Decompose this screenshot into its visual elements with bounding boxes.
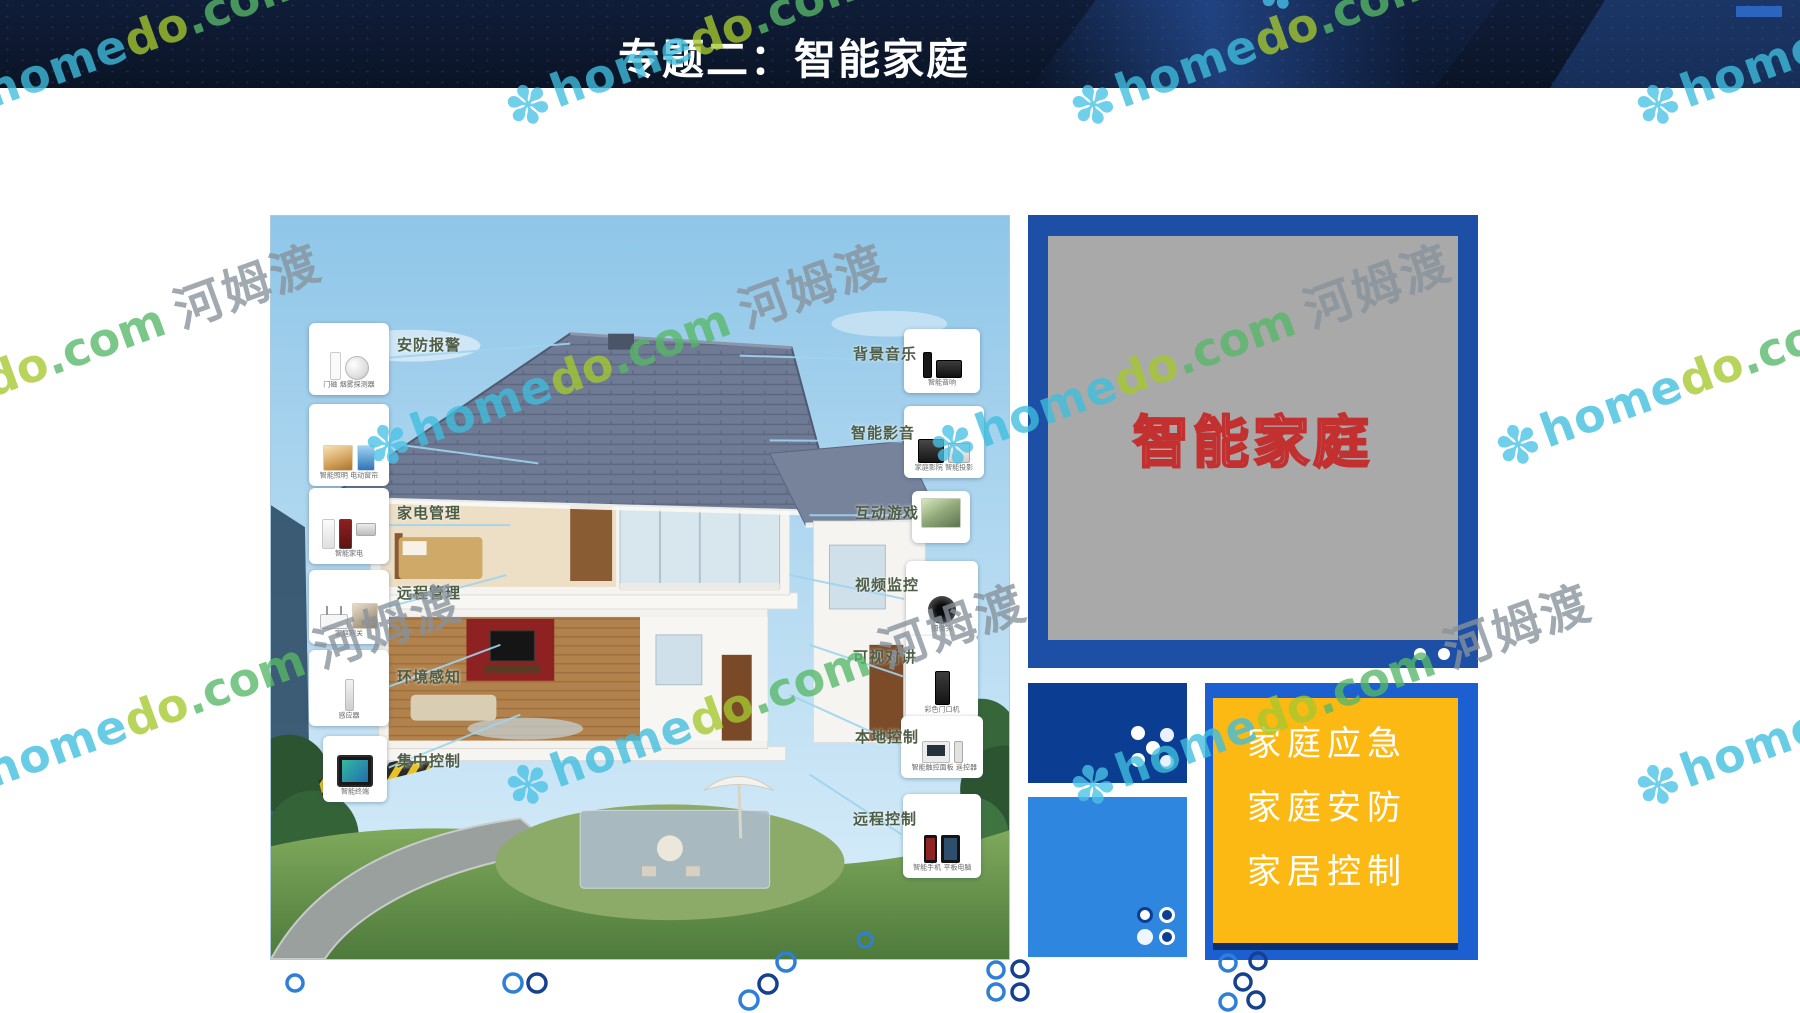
device-label: 安防报警 bbox=[397, 334, 461, 355]
device-images bbox=[311, 652, 387, 711]
device-card-left-4: 感应器 bbox=[309, 650, 389, 726]
device-label: 互动游戏 bbox=[855, 502, 919, 523]
device-images bbox=[311, 325, 387, 380]
decor-dot bbox=[1146, 741, 1160, 755]
decor-dot bbox=[1159, 907, 1175, 923]
watermark-com: .com bbox=[1732, 293, 1800, 386]
device-card-left-1: 智能照明 电动窗帘 bbox=[309, 404, 389, 486]
device-caption bbox=[920, 529, 962, 538]
device-images bbox=[311, 406, 387, 471]
decor-dot bbox=[1137, 929, 1153, 945]
slide-title: 专题二：智能家庭 bbox=[618, 26, 970, 87]
headline-screen: 智能家庭 bbox=[1048, 236, 1458, 640]
device-images bbox=[906, 408, 982, 463]
decor-ring bbox=[1012, 984, 1028, 1000]
scene-blue-icon bbox=[357, 445, 375, 471]
headline-text: 智能家庭 bbox=[1133, 398, 1373, 479]
device-caption: 智能家电 bbox=[319, 550, 378, 559]
homedo-flower-icon: ✽ bbox=[1486, 408, 1550, 483]
wine-cooler-icon bbox=[339, 519, 352, 549]
smoke-detector-icon bbox=[345, 356, 369, 380]
door-sensor-icon bbox=[330, 352, 341, 380]
bullet-item: 家庭安防 bbox=[1247, 791, 1458, 825]
device-label: 环境感知 bbox=[397, 666, 461, 687]
watermark-home: home bbox=[1673, 697, 1800, 798]
decor-ring bbox=[988, 984, 1004, 1000]
device-label: 远程控制 bbox=[853, 808, 917, 829]
bullet-box-frame: 家庭应急家庭安防家居控制 bbox=[1205, 683, 1478, 960]
device-card-right-1: 家庭影院 智能投影 bbox=[904, 406, 984, 478]
headline-frame: 智能家庭 bbox=[1028, 215, 1478, 668]
device-images bbox=[311, 490, 387, 549]
smart-home-diagram: 门磁 烟雾探测器安防报警智能照明 电动窗帘智能家电家电管理家庭网关远程管理感应器… bbox=[270, 215, 1010, 960]
device-caption: 智能终端 bbox=[332, 788, 379, 797]
device-label: 智能影音 bbox=[851, 422, 915, 443]
device-caption: 智能触控面板 遥控器 bbox=[912, 764, 973, 773]
tablet-icon bbox=[941, 835, 960, 863]
decor-ring bbox=[740, 991, 758, 1009]
appliance-white-icon bbox=[322, 519, 335, 549]
watermark-home: home bbox=[0, 697, 135, 798]
decor-ring bbox=[287, 975, 303, 991]
decor-ring bbox=[1012, 961, 1028, 977]
decor-ring bbox=[504, 974, 522, 992]
device-label: 视频监控 bbox=[855, 574, 919, 595]
device-card-right-2 bbox=[912, 491, 970, 543]
device-label: 本地控制 bbox=[855, 726, 919, 747]
frame-dot bbox=[1438, 648, 1450, 660]
watermark-com: .com bbox=[37, 293, 172, 386]
device-card-right-3: 摄像头 bbox=[906, 561, 978, 639]
door-station-icon bbox=[935, 671, 950, 705]
decor-ring bbox=[759, 975, 777, 993]
av-receiver-icon bbox=[936, 360, 962, 378]
device-card-left-3: 家庭网关 bbox=[309, 570, 389, 644]
device-caption: 智能音响 bbox=[914, 379, 970, 388]
smartphone-icon bbox=[924, 835, 937, 863]
watermark-do: do bbox=[116, 675, 195, 748]
watermark: ✽homedo.com河姆渡 bbox=[1622, 563, 1800, 822]
touch-terminal-icon bbox=[337, 755, 373, 787]
device-label: 可视对讲 bbox=[853, 646, 917, 667]
device-images bbox=[325, 738, 385, 787]
remote-icon bbox=[954, 741, 963, 763]
device-caption: 摄像头 bbox=[915, 625, 968, 634]
header-decor-chip bbox=[1736, 6, 1782, 17]
device-caption: 门磁 烟雾探测器 bbox=[319, 381, 378, 390]
decor-box-light bbox=[1028, 797, 1187, 957]
device-images bbox=[908, 638, 976, 705]
speaker-icon bbox=[923, 352, 932, 378]
header-decor-corner bbox=[1550, 0, 1800, 88]
device-label: 集中控制 bbox=[397, 750, 461, 771]
camera-icon bbox=[928, 596, 956, 624]
device-card-left-5: 智能终端 bbox=[323, 736, 387, 802]
device-caption: 智能手机 平板电脑 bbox=[913, 864, 971, 873]
device-caption: 彩色门口机 bbox=[915, 706, 968, 715]
slide-header: 专题二：智能家庭 bbox=[0, 0, 1800, 88]
decor-ring bbox=[1235, 974, 1251, 990]
sensor-stick-icon bbox=[345, 679, 354, 711]
decor-dot bbox=[1160, 755, 1174, 769]
device-images bbox=[914, 493, 968, 528]
device-card-left-2: 智能家电 bbox=[309, 488, 389, 564]
projector-icon bbox=[948, 443, 970, 463]
decor-dot bbox=[1131, 726, 1145, 740]
device-caption: 感应器 bbox=[319, 712, 378, 721]
control-panel-icon bbox=[922, 741, 950, 763]
bullet-item: 家庭应急 bbox=[1247, 727, 1458, 761]
device-images bbox=[905, 796, 979, 863]
decor-dot bbox=[1137, 907, 1153, 923]
game-scene-icon bbox=[921, 498, 961, 528]
router-icon bbox=[320, 614, 348, 629]
watermark-do: do bbox=[0, 335, 56, 408]
header-decor-stripe bbox=[1030, 0, 1500, 88]
home-theater-icon bbox=[918, 439, 944, 463]
bullet-box: 家庭应急家庭安防家居控制 bbox=[1213, 698, 1458, 950]
decor-ring bbox=[528, 974, 546, 992]
device-label: 远程管理 bbox=[397, 582, 461, 603]
decor-ring bbox=[1220, 994, 1236, 1010]
homedo-flower-icon: ✽ bbox=[1626, 748, 1690, 823]
decor-dot bbox=[1159, 929, 1175, 945]
bullet-item: 家居控制 bbox=[1247, 855, 1458, 889]
watermark-home: home bbox=[1533, 357, 1690, 458]
device-caption: 家庭影院 智能投影 bbox=[914, 464, 973, 473]
device-label: 家电管理 bbox=[397, 502, 461, 523]
device-caption: 智能照明 电动窗帘 bbox=[319, 472, 378, 481]
device-caption: 家庭网关 bbox=[319, 630, 378, 639]
frame-dot bbox=[1414, 648, 1426, 660]
device-label: 背景音乐 bbox=[853, 343, 917, 364]
bullet-list: 家庭应急家庭安防家居控制 bbox=[1247, 727, 1458, 889]
device-card-left-0: 门磁 烟雾探测器 bbox=[309, 323, 389, 395]
decor-box-dark bbox=[1028, 683, 1187, 783]
device-card-right-6: 智能手机 平板电脑 bbox=[903, 794, 981, 878]
watermark-do: do bbox=[1671, 335, 1750, 408]
watermark: ✽homedo.com河姆渡 bbox=[1482, 223, 1800, 482]
scene-room-icon bbox=[352, 603, 378, 629]
device-images bbox=[311, 572, 387, 629]
slide-canvas: 专题二：智能家庭 bbox=[0, 0, 1800, 1013]
decor-ring bbox=[988, 962, 1004, 978]
range-hood-icon bbox=[356, 523, 376, 536]
decor-dot bbox=[1160, 728, 1174, 742]
scene-warm-icon bbox=[323, 445, 353, 471]
decor-ring bbox=[1248, 992, 1264, 1008]
decor-dot bbox=[1131, 753, 1145, 767]
